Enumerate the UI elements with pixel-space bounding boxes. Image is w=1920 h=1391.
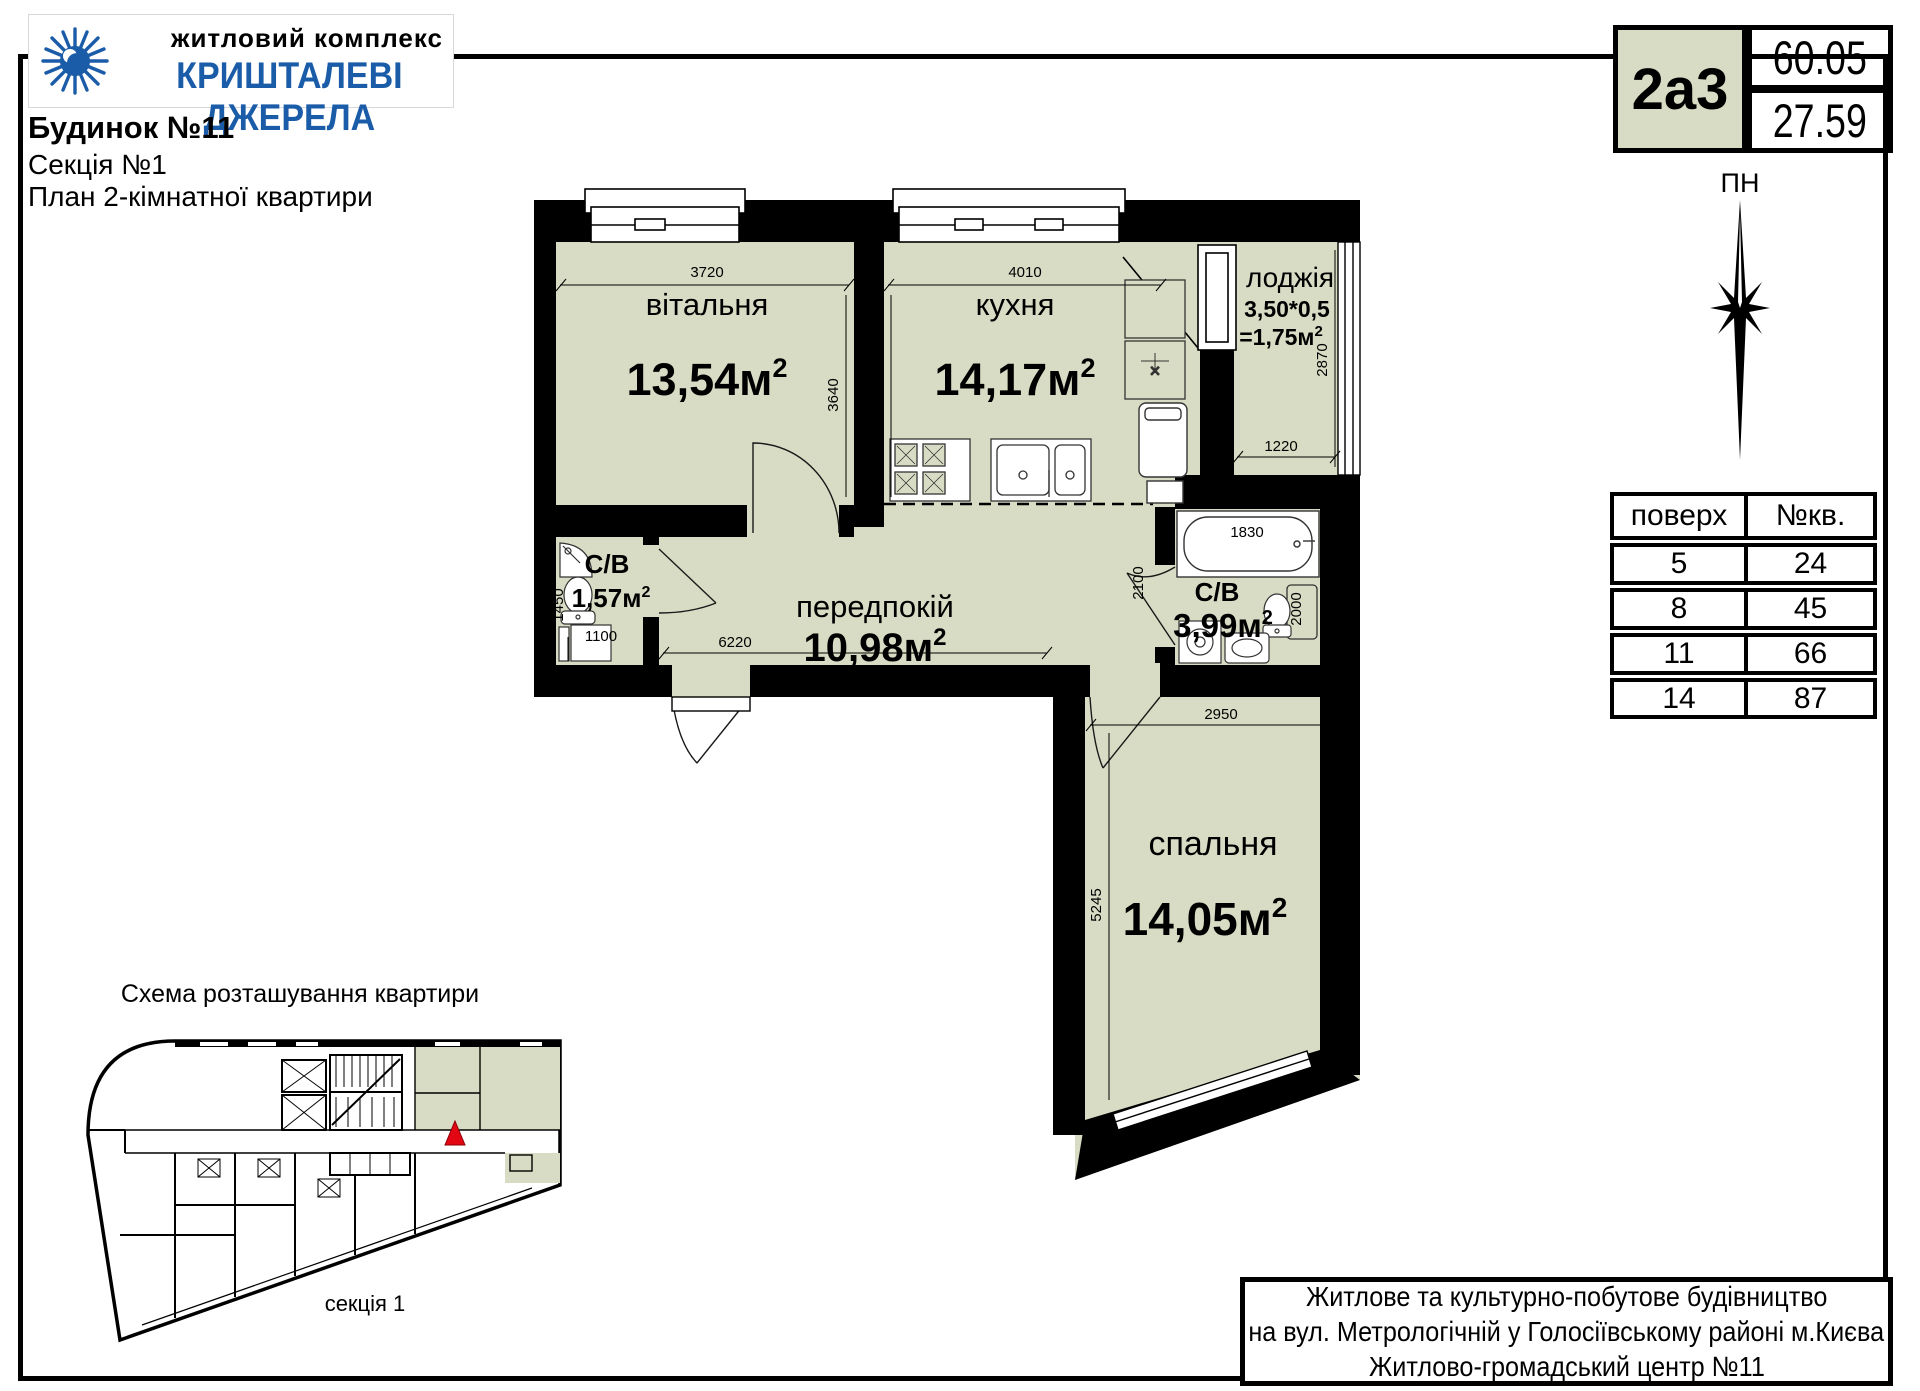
- living-room-label: вітальня: [646, 287, 769, 322]
- bath2-label: С/В: [1195, 577, 1240, 607]
- dim-kitchen-h: 3740: [870, 378, 887, 411]
- cell-text: 11: [1663, 637, 1694, 671]
- floors-row-cell: 11: [1610, 633, 1748, 675]
- stove-icon: [890, 439, 970, 501]
- cell-text: 66: [1794, 637, 1827, 671]
- loggia-area: =1,75м2: [1239, 323, 1323, 350]
- floors-row-cell: 14: [1610, 678, 1748, 719]
- project-info-line1: Житлове та культурно-побутове будівництв…: [1306, 1279, 1827, 1314]
- unit-code-text: 2а3: [1632, 56, 1729, 123]
- kitchen-label: кухня: [976, 287, 1055, 322]
- plan-title: План 2-кімнатної квартири: [28, 181, 373, 213]
- unit-total-area: 60.05: [1747, 25, 1893, 90]
- dim-bedroom-h: 5245: [1088, 888, 1105, 921]
- sun-icon: [37, 23, 113, 99]
- floors-row-cell: 8: [1610, 588, 1748, 630]
- unit-living-area: 27.59: [1747, 88, 1893, 153]
- dim-bath1-h: 1450: [550, 588, 567, 621]
- unit-code-badge: 2а3: [1613, 25, 1747, 153]
- bathtub-icon: [1177, 511, 1319, 577]
- section-mini-plan: секція 1: [80, 1035, 580, 1391]
- bedroom-area: 14,05м2: [1123, 892, 1288, 945]
- bedroom-label: спальня: [1148, 825, 1277, 863]
- complex-label: житловий комплекс: [147, 23, 467, 54]
- living-window: [585, 189, 745, 242]
- floors-row-cell: 45: [1744, 588, 1877, 630]
- floors-row-cell: 66: [1744, 633, 1877, 675]
- project-info-line2: на вул. Метрологічній у Голосіївському р…: [1249, 1314, 1885, 1349]
- loggia-formula: 3,50*0,5: [1244, 296, 1330, 322]
- bath1-area: 1,57м2: [572, 583, 651, 613]
- svg-text:×: ×: [1150, 361, 1161, 381]
- logo: житловий комплекс КРИШТАЛЕВІ ДЖЕРЕЛА: [28, 14, 454, 108]
- dim-loggia-h: 2870: [1314, 343, 1331, 376]
- bath2-area: 3,99м2: [1173, 607, 1273, 644]
- section-title: Секція №1: [28, 149, 167, 181]
- kitchen-sink-icon: [991, 439, 1091, 501]
- dim-bedroom-w: 2950: [1204, 706, 1237, 723]
- cell-text: 5: [1671, 547, 1688, 581]
- section-label: секція 1: [325, 1291, 406, 1316]
- cell-text: 24: [1794, 547, 1827, 581]
- building-title: Будинок №11: [28, 110, 234, 146]
- floors-row-cell: 87: [1744, 678, 1877, 719]
- project-info-line3: Житлово-громадський центр №11: [1369, 1349, 1765, 1384]
- cell-text: 14: [1662, 682, 1695, 716]
- cell-text: 45: [1794, 592, 1827, 626]
- cell-text: 87: [1794, 682, 1827, 716]
- dim-living-w: 3720: [690, 264, 723, 281]
- kitchen-area: 14,17м2: [935, 353, 1096, 405]
- dim-bath1-w: 1100: [585, 628, 617, 645]
- hall-label: передпокій: [796, 589, 954, 624]
- floors-row-cell: 24: [1744, 543, 1877, 585]
- hall-area: 10,98м2: [803, 624, 946, 670]
- floor-plan-sheet: житловий комплекс КРИШТАЛЕВІ ДЖЕРЕЛА Буд…: [0, 0, 1920, 1391]
- north-label: ПН: [1700, 168, 1780, 199]
- living-room-area: 13,54м2: [627, 353, 788, 405]
- loggia-glazing: [1338, 242, 1360, 475]
- apartment-floor-plan: ×: [435, 145, 1365, 1185]
- dim-bath2-right: 2000: [1288, 592, 1305, 625]
- unit-total-area-value: 60.05: [1773, 30, 1867, 85]
- floors-row-cell: 5: [1610, 543, 1748, 585]
- dim-bath2-left: 2100: [1130, 566, 1147, 599]
- dim-loggia-w: 1220: [1264, 438, 1297, 455]
- floors-header-apt: №кв.: [1744, 492, 1877, 540]
- cell-text: 8: [1671, 592, 1688, 626]
- dim-living-h: 3640: [825, 378, 842, 411]
- dim-tub: 1830: [1230, 524, 1263, 541]
- floors-header-apt-text: №кв.: [1776, 499, 1846, 533]
- bath1-label: С/В: [585, 549, 630, 579]
- loggia-label: лоджія: [1246, 262, 1334, 293]
- floors-header-floor-text: поверх: [1631, 499, 1728, 533]
- dim-hall-w: 6220: [718, 634, 751, 651]
- schema-title: Схема розташування квартири: [120, 980, 480, 1009]
- floors-header-floor: поверх: [1610, 492, 1748, 540]
- dim-kitchen-w: 4010: [1008, 264, 1041, 281]
- unit-living-area-value: 27.59: [1773, 93, 1867, 148]
- project-info-box: Житлове та культурно-побутове будівництв…: [1240, 1277, 1893, 1386]
- north-compass-icon: [1690, 198, 1790, 463]
- kitchen-window: [893, 189, 1125, 242]
